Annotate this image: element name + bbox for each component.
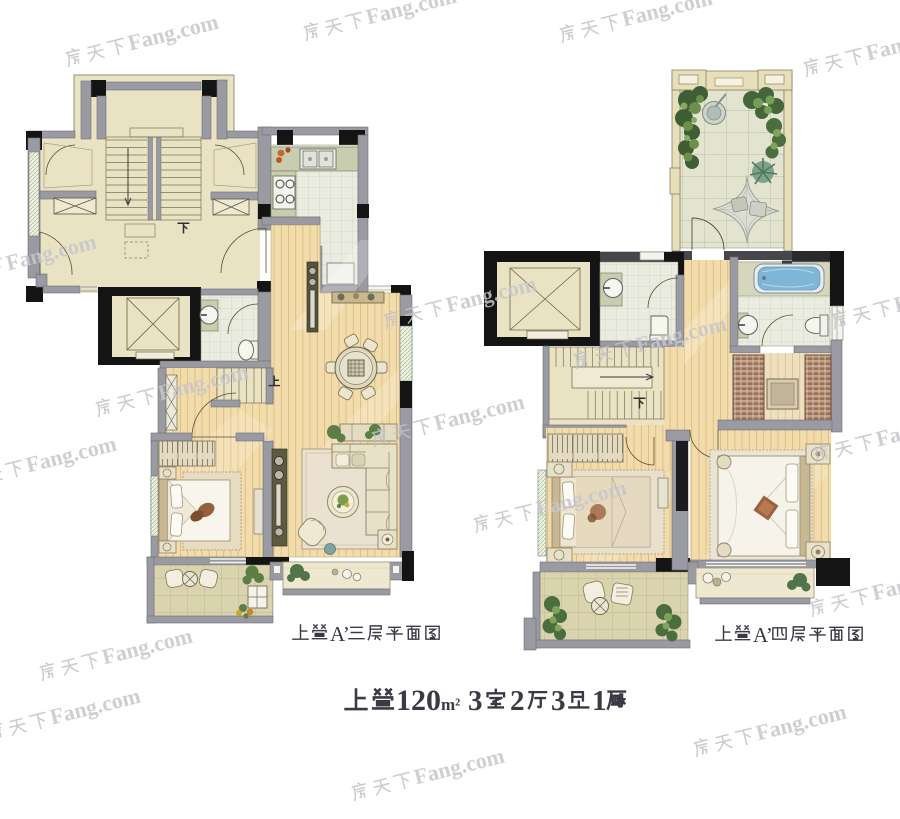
svg-text:A’: A’ xyxy=(753,623,773,647)
svg-text:A’: A’ xyxy=(330,622,350,646)
svg-text:3: 3 xyxy=(468,685,483,717)
svg-text:3: 3 xyxy=(551,685,566,717)
svg-text:m²: m² xyxy=(441,695,460,714)
svg-text:1: 1 xyxy=(592,685,607,717)
svg-text:120: 120 xyxy=(396,684,441,717)
svg-text:2: 2 xyxy=(510,685,525,717)
